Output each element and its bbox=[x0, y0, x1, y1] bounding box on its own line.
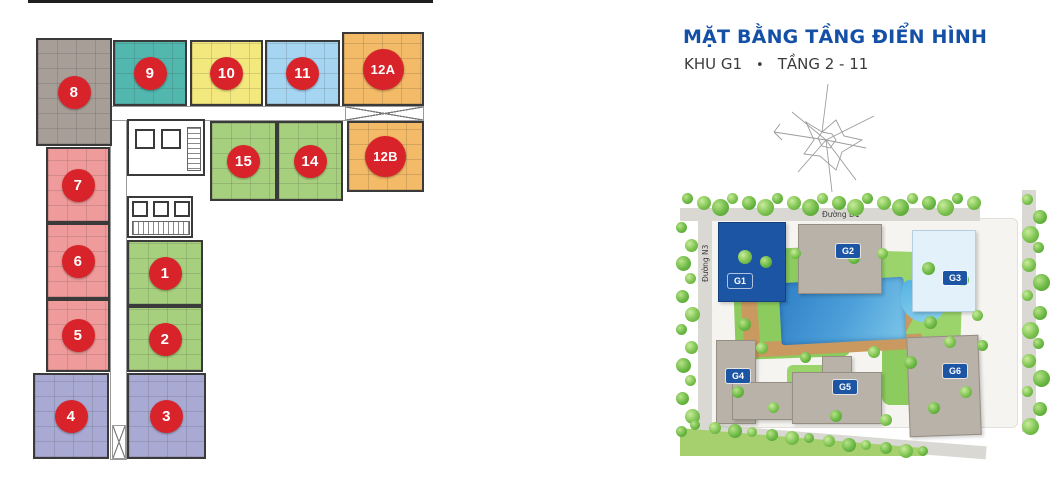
unit-12a: 12A bbox=[342, 32, 424, 106]
tree-icon bbox=[861, 440, 871, 450]
tree-icon bbox=[685, 307, 700, 322]
tree-icon bbox=[712, 199, 729, 216]
tree-icon bbox=[1022, 354, 1036, 368]
tree-icon bbox=[676, 324, 687, 335]
tree-icon bbox=[732, 386, 744, 398]
tree-icon bbox=[760, 256, 772, 268]
tree-icon bbox=[972, 310, 983, 321]
building-g1 bbox=[718, 222, 786, 302]
tree-icon bbox=[790, 248, 801, 259]
tree-icon bbox=[877, 196, 891, 210]
building-g3-label: G3 bbox=[943, 271, 967, 285]
floor-plan: 8 9 10 11 12A 15 14 12B 7 6 5 1 2 4 3 bbox=[0, 0, 470, 500]
building-g5-label: G5 bbox=[833, 380, 857, 394]
unit-2: 2 bbox=[127, 306, 203, 372]
tree-icon bbox=[1033, 306, 1047, 320]
tree-icon bbox=[880, 414, 892, 426]
unit-8-badge: 8 bbox=[58, 76, 91, 109]
unit-5-badge: 5 bbox=[62, 319, 95, 352]
unit-10-badge: 10 bbox=[210, 57, 243, 90]
tree-icon bbox=[742, 196, 756, 210]
tree-icon bbox=[922, 262, 935, 275]
tree-icon bbox=[817, 193, 828, 204]
tree-icon bbox=[862, 193, 873, 204]
building-g2 bbox=[798, 224, 882, 294]
tree-icon bbox=[918, 446, 928, 456]
tree-icon bbox=[1033, 242, 1044, 253]
unit-12a-badge: 12A bbox=[363, 49, 404, 90]
tree-icon bbox=[868, 346, 880, 358]
page-title: MẶT BẰNG TẦNG ĐIỂN HÌNH bbox=[683, 26, 987, 48]
unit-6: 6 bbox=[46, 223, 110, 299]
subtitle-khu: KHU G1 bbox=[684, 55, 742, 73]
corridor-vertical bbox=[110, 120, 127, 460]
tree-icon bbox=[676, 290, 689, 303]
unit-11: 11 bbox=[265, 40, 340, 106]
tree-icon bbox=[877, 248, 888, 259]
tree-icon bbox=[685, 239, 698, 252]
tree-icon bbox=[832, 196, 846, 210]
building-g2-label: G2 bbox=[836, 244, 860, 258]
tree-icon bbox=[842, 438, 856, 452]
tree-icon bbox=[676, 426, 687, 437]
tree-icon bbox=[1033, 274, 1050, 291]
tree-icon bbox=[1022, 418, 1039, 435]
unit-6-badge: 6 bbox=[62, 245, 95, 278]
elevator-icon bbox=[135, 129, 155, 149]
tree-icon bbox=[727, 193, 738, 204]
tree-icon bbox=[904, 356, 917, 369]
tree-icon bbox=[787, 196, 801, 210]
tree-icon bbox=[1033, 402, 1047, 416]
elevator-icon bbox=[161, 129, 181, 149]
tree-icon bbox=[1022, 386, 1033, 397]
unit-9: 9 bbox=[113, 40, 187, 106]
tree-icon bbox=[766, 429, 778, 441]
page: 8 9 10 11 12A 15 14 12B 7 6 5 1 2 4 3 bbox=[0, 0, 1054, 500]
tree-icon bbox=[967, 196, 981, 210]
tree-icon bbox=[1022, 258, 1036, 272]
tree-icon bbox=[676, 256, 691, 271]
building-g6-label: G6 bbox=[943, 364, 967, 378]
tree-icon bbox=[907, 193, 918, 204]
unit-3-badge: 3 bbox=[150, 400, 183, 433]
tree-icon bbox=[768, 402, 779, 413]
tree-icon bbox=[1033, 210, 1047, 224]
unit-11-badge: 11 bbox=[286, 57, 319, 90]
tree-icon bbox=[830, 410, 842, 422]
unit-2-badge: 2 bbox=[149, 323, 182, 356]
unit-3: 3 bbox=[127, 373, 206, 459]
unit-14-badge: 14 bbox=[294, 145, 327, 178]
unit-7: 7 bbox=[46, 147, 110, 223]
tree-icon bbox=[685, 375, 696, 386]
tree-icon bbox=[802, 199, 819, 216]
tree-icon bbox=[800, 352, 811, 363]
unit-14: 14 bbox=[277, 121, 343, 201]
tree-icon bbox=[847, 199, 864, 216]
building-g6 bbox=[906, 335, 981, 437]
tree-icon bbox=[676, 222, 687, 233]
tree-icon bbox=[1033, 338, 1044, 349]
tree-icon bbox=[690, 420, 700, 430]
subtitle-tang: TẦNG 2 - 11 bbox=[778, 55, 869, 73]
tree-icon bbox=[685, 273, 696, 284]
stairs-icon bbox=[132, 221, 190, 235]
tree-icon bbox=[880, 442, 892, 454]
unit-10: 10 bbox=[190, 40, 263, 106]
unit-1-badge: 1 bbox=[149, 257, 182, 290]
unit-4-badge: 4 bbox=[55, 400, 88, 433]
tree-icon bbox=[924, 316, 937, 329]
building-g1-label: G1 bbox=[728, 274, 752, 288]
tree-icon bbox=[952, 193, 963, 204]
unit-15: 15 bbox=[210, 121, 277, 201]
tree-icon bbox=[685, 341, 698, 354]
elevator-icon bbox=[174, 201, 190, 217]
tree-icon bbox=[676, 358, 691, 373]
tree-icon bbox=[738, 250, 752, 264]
tree-icon bbox=[960, 386, 972, 398]
tree-icon bbox=[747, 427, 757, 437]
unit-12b: 12B bbox=[347, 121, 424, 192]
road-n3-label: Đường N3 bbox=[701, 245, 710, 282]
page-subtitle: KHU G1•TẦNG 2 - 11 bbox=[684, 55, 868, 73]
tree-icon bbox=[928, 402, 940, 414]
subtitle-bullet: • bbox=[756, 58, 764, 73]
unit-1: 1 bbox=[127, 240, 203, 306]
unit-8: 8 bbox=[36, 38, 112, 146]
tree-icon bbox=[1022, 226, 1039, 243]
unit-5: 5 bbox=[46, 299, 110, 372]
unit-15-badge: 15 bbox=[227, 145, 260, 178]
tree-icon bbox=[697, 196, 711, 210]
tree-icon bbox=[1022, 194, 1033, 205]
tree-icon bbox=[785, 431, 799, 445]
tree-icon bbox=[937, 199, 954, 216]
tree-icon bbox=[977, 340, 988, 351]
tree-icon bbox=[756, 342, 768, 354]
tree-icon bbox=[944, 336, 956, 348]
tree-icon bbox=[676, 392, 689, 405]
tree-icon bbox=[682, 193, 693, 204]
unit-7-badge: 7 bbox=[62, 169, 95, 202]
tree-icon bbox=[738, 318, 751, 331]
stairs-icon bbox=[187, 127, 201, 171]
tree-icon bbox=[1022, 322, 1039, 339]
tree-icon bbox=[757, 199, 774, 216]
elevator-icon bbox=[132, 201, 148, 217]
tree-icon bbox=[1033, 370, 1050, 387]
stairwell-bottom bbox=[112, 425, 126, 459]
tree-icon bbox=[772, 193, 783, 204]
site-plan: Đường D1 Đường N3 G1 G2 G3 G4 G5 G6 bbox=[672, 190, 1052, 474]
tree-icon bbox=[899, 444, 913, 458]
unit-4: 4 bbox=[33, 373, 109, 459]
elevator-icon bbox=[153, 201, 169, 217]
unit-9-badge: 9 bbox=[134, 57, 167, 90]
elevator-core-upper bbox=[127, 119, 205, 176]
corridor-bridge bbox=[345, 106, 424, 121]
compass-rose-icon bbox=[770, 82, 882, 194]
unit-12b-badge: 12B bbox=[365, 136, 406, 177]
elevator-core-lower bbox=[127, 196, 193, 238]
building-g4-label: G4 bbox=[726, 369, 750, 383]
tree-icon bbox=[892, 199, 909, 216]
tree-icon bbox=[1022, 290, 1033, 301]
tree-icon bbox=[922, 196, 936, 210]
